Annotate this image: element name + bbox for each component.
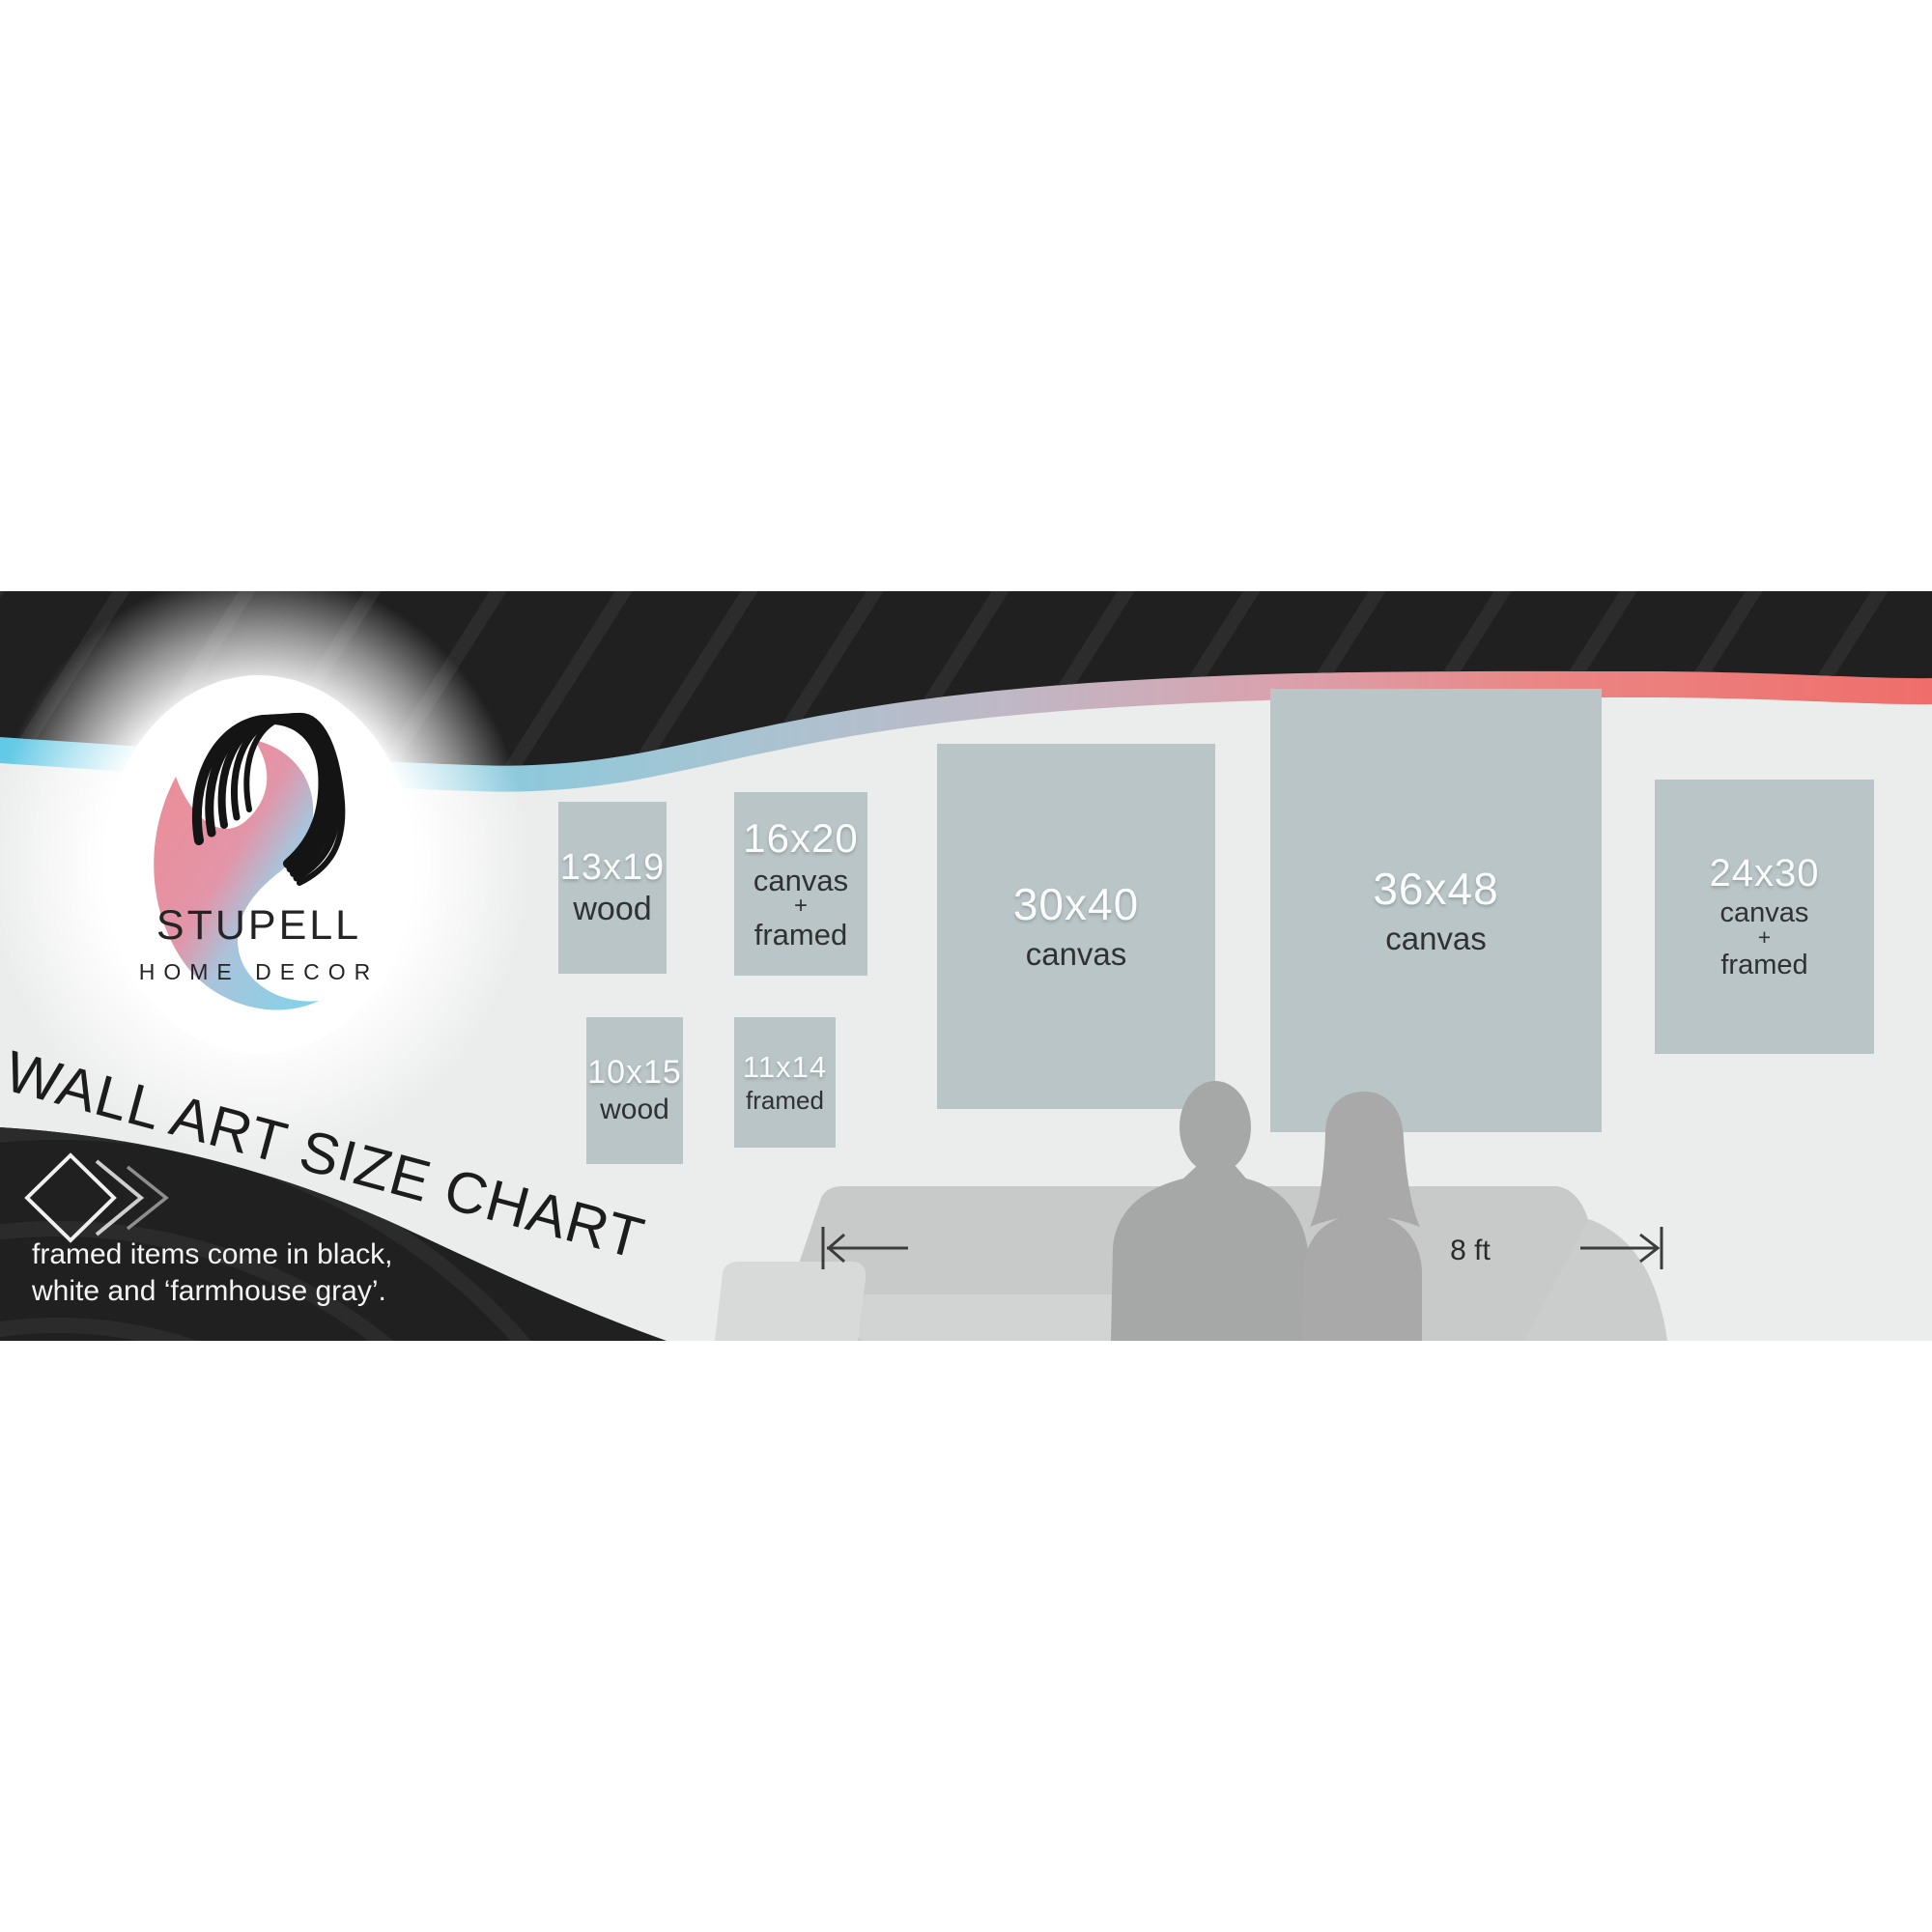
art-tile-size: 24x30 — [1710, 853, 1820, 895]
art-tile-material: canvas — [1026, 937, 1127, 972]
art-tile-material: wood — [600, 1094, 669, 1125]
art-tile-size: 10x15 — [587, 1055, 682, 1091]
art-tile-11x14: 11x14 framed — [734, 1017, 836, 1148]
page: 13x19 wood 16x20 canvas + framed 30x40 c… — [0, 0, 1932, 1932]
art-tile-size: 16x20 — [743, 816, 858, 860]
wall-art-tiles: 13x19 wood 16x20 canvas + framed 30x40 c… — [0, 591, 1932, 1341]
art-tile-plus: + — [1758, 928, 1771, 946]
art-tile-material: framed — [1720, 951, 1807, 980]
art-tile-size: 11x14 — [743, 1051, 827, 1083]
art-tile-material: framed — [754, 919, 847, 951]
art-tile-size: 13x19 — [560, 848, 666, 888]
art-tile-material: framed — [746, 1087, 824, 1114]
art-tile-16x20: 16x20 canvas + framed — [734, 792, 867, 976]
art-tile-size: 36x48 — [1373, 866, 1498, 914]
art-tile-10x15: 10x15 wood — [586, 1017, 683, 1164]
art-tile-plus: + — [794, 896, 808, 915]
art-tile-13x19: 13x19 wood — [558, 802, 667, 974]
art-tile-30x40: 30x40 canvas — [937, 744, 1215, 1109]
wall-art-size-chart-banner: 13x19 wood 16x20 canvas + framed 30x40 c… — [0, 591, 1932, 1341]
art-tile-material: canvas — [753, 865, 848, 896]
art-tile-material: canvas — [1385, 922, 1487, 956]
art-tile-material: wood — [573, 892, 651, 927]
art-tile-36x48: 36x48 canvas — [1270, 689, 1602, 1132]
art-tile-size: 30x40 — [1013, 881, 1139, 929]
art-tile-24x30: 24x30 canvas + framed — [1655, 780, 1874, 1054]
